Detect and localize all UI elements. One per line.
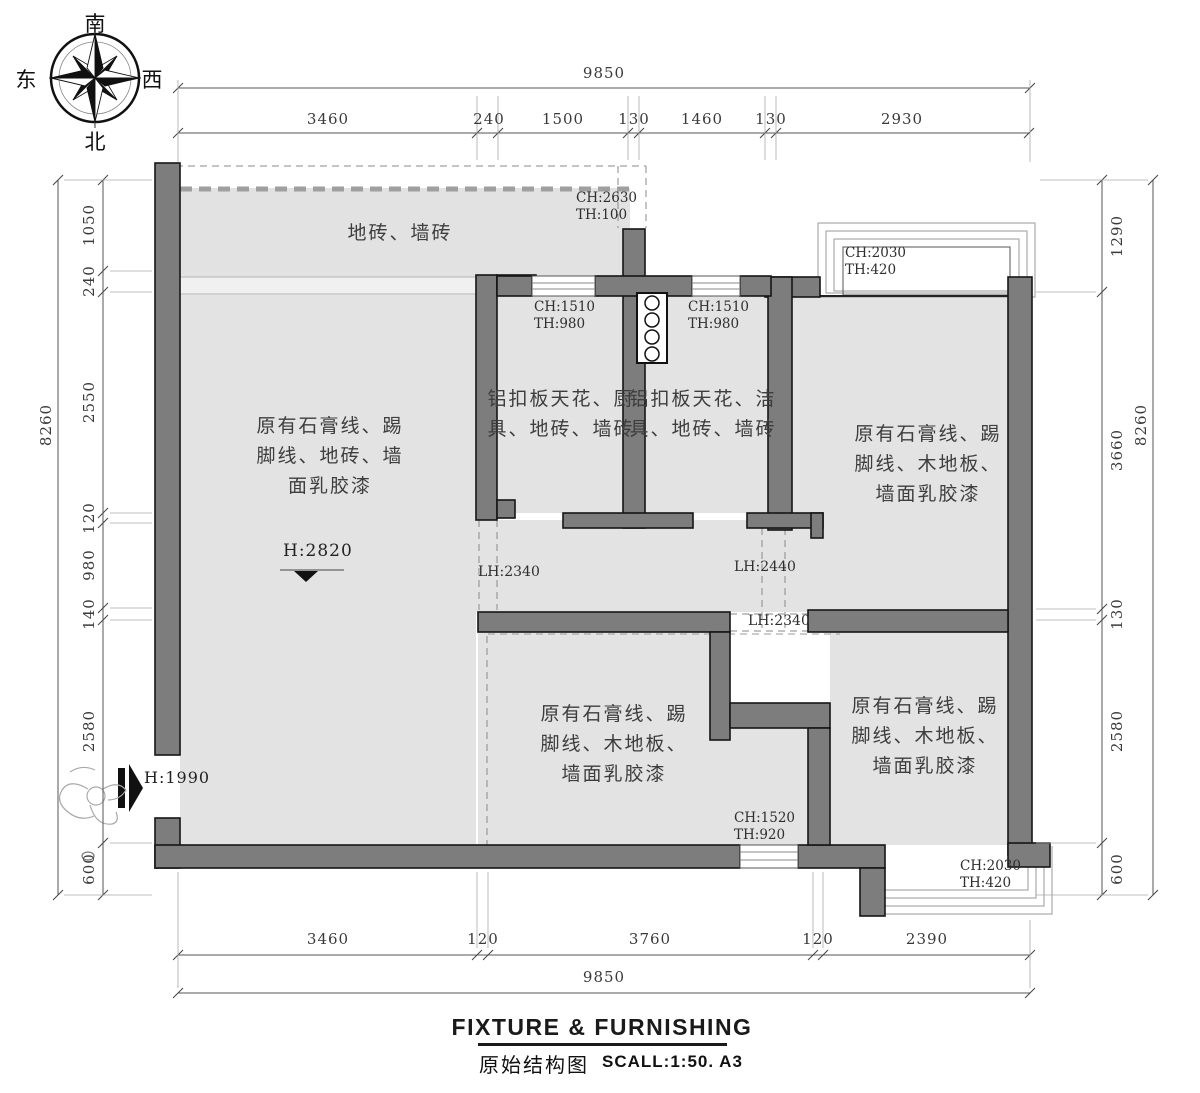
opening-lh-bottom: LH:2340: [748, 613, 810, 630]
dim-bottom-seg-4: 2390: [906, 930, 948, 948]
terrace-label: 地砖、墙砖: [347, 219, 452, 249]
th-value: TH:100: [576, 207, 637, 224]
ch-value: CH:1510: [688, 299, 749, 316]
bedroom-top-right-label: 原有石膏线、踢 脚线、木地板、 墙面乳胶漆: [854, 420, 1001, 510]
dim-left-overall: 8260: [37, 404, 55, 446]
compass-east-label: 东: [16, 64, 37, 94]
floor-plan-drawing: [0, 0, 1200, 1093]
dim-left-seg-6: 2580: [80, 710, 98, 752]
bedroom-label-line: 墙面乳胶漆: [851, 752, 998, 782]
bedroom-label-line: 墙面乳胶漆: [540, 760, 687, 790]
bay-bottom-annotation: CH:2030 TH:420: [960, 858, 1021, 892]
terrace-height-annotation: CH:2630 TH:100: [576, 190, 637, 224]
dim-bottom-seg-3: 120: [802, 930, 834, 948]
drawing-title: FIXTURE & FURNISHING: [452, 1014, 753, 1041]
th-value: TH:980: [688, 316, 749, 333]
living-label-line: 原有石膏线、踢: [256, 412, 403, 442]
bedroom-label-line: 原有石膏线、踢: [540, 700, 687, 730]
dim-right-seg-1: 3660: [1108, 429, 1126, 471]
bedroom-label-line: 脚线、木地板、: [540, 730, 687, 760]
dim-top-seg-3: 130: [618, 110, 650, 128]
dim-right-seg-2: 130: [1108, 598, 1126, 630]
bathroom-label-line: 具、地砖、墙砖: [629, 415, 776, 445]
compass-west-label: 西: [142, 64, 163, 94]
title-underline: [478, 1043, 727, 1046]
kitchen-label-line: 铝扣板天花、厨: [487, 385, 634, 415]
dim-left-seg-0: 1050: [80, 204, 98, 246]
th-value: TH:980: [534, 316, 595, 333]
entry-height-label: H:1990: [144, 768, 210, 787]
pipe-shaft: [637, 293, 667, 363]
dim-top-seg-5: 130: [755, 110, 787, 128]
th-value: TH:420: [845, 262, 906, 279]
ch-value: CH:1520: [734, 810, 795, 827]
bedroom-label-line: 脚线、木地板、: [851, 722, 998, 752]
dim-left-seg-7: 600: [80, 853, 98, 885]
dim-top-seg-6: 2930: [881, 110, 923, 128]
dim-top-seg-2: 1500: [542, 110, 584, 128]
kitchen-window-annotation: CH:1510 TH:980: [534, 299, 595, 333]
ch-value: CH:1510: [534, 299, 595, 316]
dim-right-overall: 8260: [1132, 404, 1150, 446]
ch-value: CH:2030: [960, 858, 1021, 875]
dim-left-seg-3: 120: [80, 502, 98, 534]
dim-right-seg-3: 2580: [1108, 710, 1126, 752]
kitchen-label-line: 具、地砖、墙砖: [487, 415, 634, 445]
dim-bottom-seg-2: 3760: [629, 930, 671, 948]
living-label-line: 脚线、地砖、墙: [256, 442, 403, 472]
dim-left-seg-2: 2550: [80, 381, 98, 423]
living-label-line: 面乳胶漆: [256, 472, 403, 502]
bedroom-label-line: 原有石膏线、踢: [851, 692, 998, 722]
dim-top-seg-4: 1460: [681, 110, 723, 128]
floor-plan-canvas: 南 北 东 西 9850 3460 240 1500 130 1460 130 …: [0, 0, 1200, 1093]
living-height-label: H:2820: [283, 541, 353, 561]
th-value: TH:920: [734, 827, 795, 844]
bedroom-label-line: 原有石膏线、踢: [854, 420, 1001, 450]
compass-rose-icon: [49, 30, 141, 128]
dim-left-seg-4: 980: [80, 549, 98, 581]
bathroom-window-annotation: CH:1510 TH:980: [688, 299, 749, 333]
dim-right-seg-0: 1290: [1108, 215, 1126, 257]
bathroom-label: 铝扣板天花、洁 具、地砖、墙砖: [629, 385, 776, 445]
terrace-label-line: 地砖、墙砖: [347, 219, 452, 249]
dim-bottom-seg-0: 3460: [307, 930, 349, 948]
entry-arrow-icon: [118, 764, 143, 812]
th-value: TH:420: [960, 875, 1021, 892]
dim-top-overall: 9850: [583, 64, 625, 82]
compass-south-label: 南: [85, 8, 106, 38]
drawing-scale: SCALL:1:50. A3: [602, 1052, 743, 1072]
person-figure-icon: [60, 767, 126, 860]
drawing-subtitle: 原始结构图: [479, 1049, 589, 1078]
bedroom-bottom-right-label: 原有石膏线、踢 脚线、木地板、 墙面乳胶漆: [851, 692, 998, 782]
bottom-window-annotation: CH:1520 TH:920: [734, 810, 795, 844]
bedroom-label-line: 墙面乳胶漆: [854, 480, 1001, 510]
dim-left-seg-5: 140: [80, 598, 98, 630]
bedroom-bottom-middle-label: 原有石膏线、踢 脚线、木地板、 墙面乳胶漆: [540, 700, 687, 790]
opening-lh-right: LH:2440: [734, 559, 796, 576]
ch-value: CH:2030: [845, 245, 906, 262]
dim-top-seg-1: 240: [473, 110, 505, 128]
bay-top-annotation: CH:2030 TH:420: [845, 245, 906, 279]
dim-left-seg-1: 240: [80, 265, 98, 297]
kitchen-label: 铝扣板天花、厨 具、地砖、墙砖: [487, 385, 634, 445]
bedroom-label-line: 脚线、木地板、: [854, 450, 1001, 480]
dim-bottom-seg-1: 120: [467, 930, 499, 948]
bathroom-label-line: 铝扣板天花、洁: [629, 385, 776, 415]
dim-bottom-overall: 9850: [583, 968, 625, 986]
compass-north-label: 北: [85, 126, 106, 156]
ch-value: CH:2630: [576, 190, 637, 207]
opening-lh-left: LH:2340: [478, 564, 540, 581]
dim-right-seg-4: 600: [1108, 853, 1126, 885]
dim-top-seg-0: 3460: [307, 110, 349, 128]
living-room-label: 原有石膏线、踢 脚线、地砖、墙 面乳胶漆: [256, 412, 403, 502]
